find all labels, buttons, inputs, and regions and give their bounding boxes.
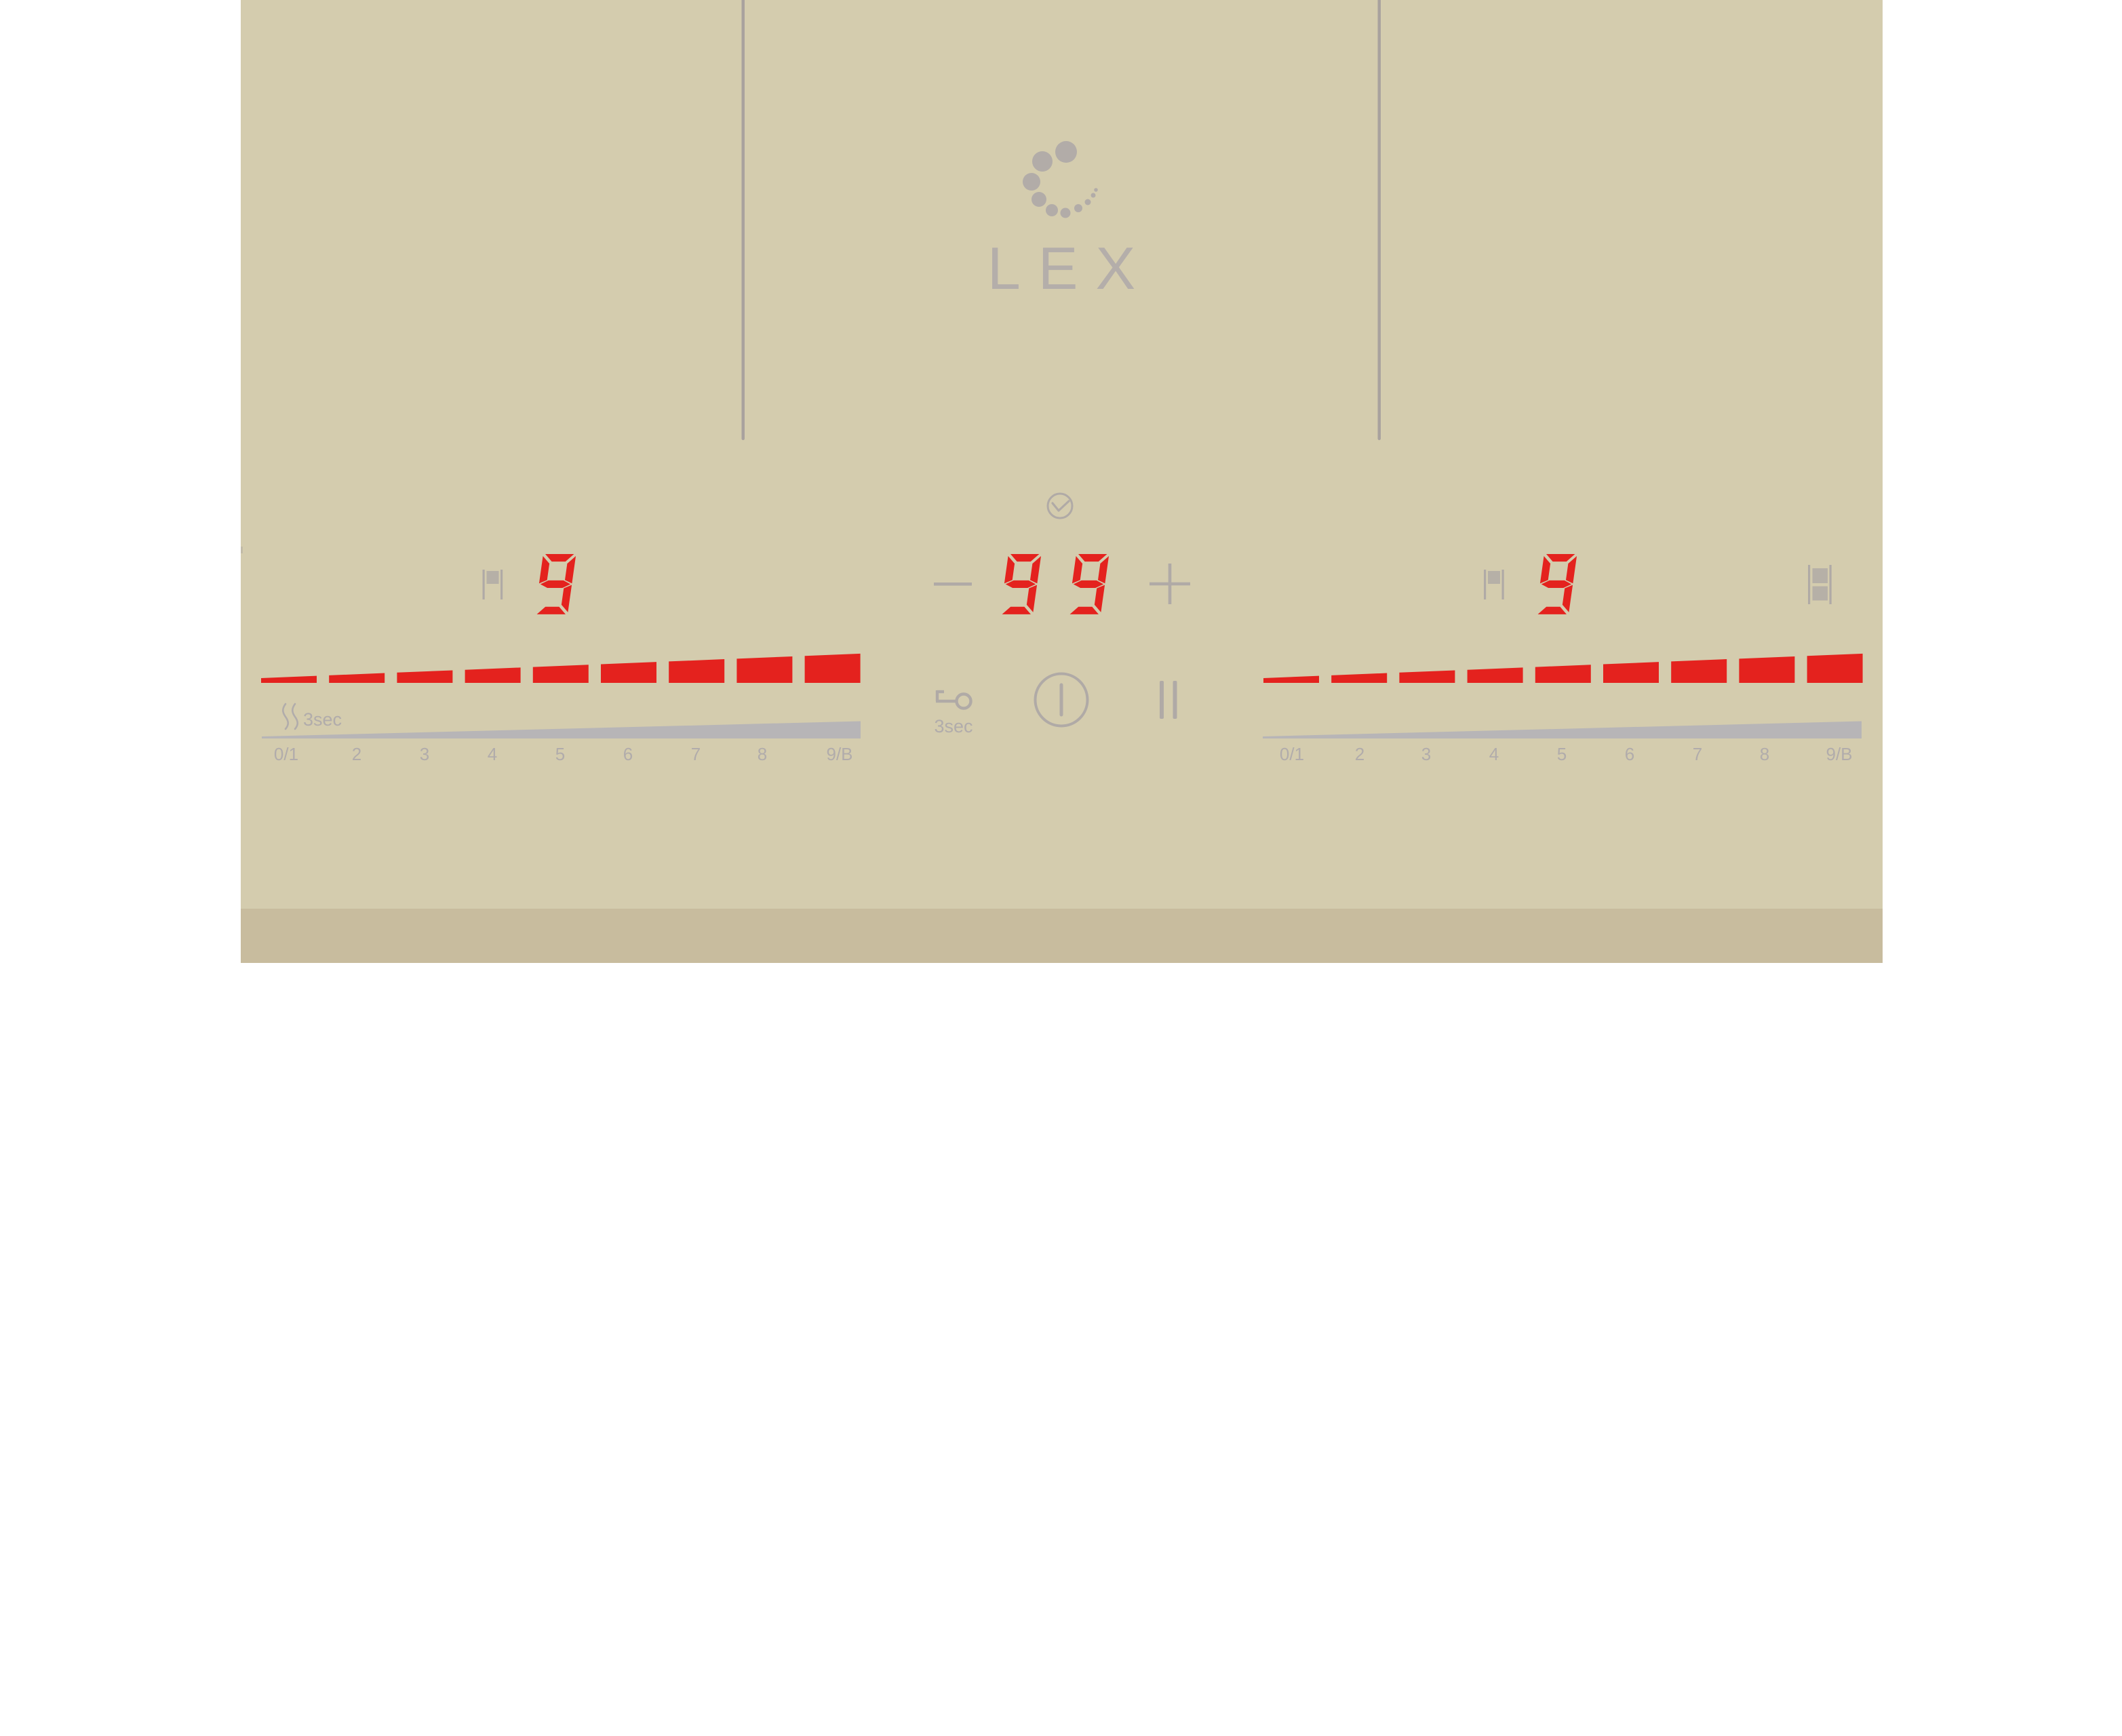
brand-logo-text: LEX bbox=[970, 239, 1153, 298]
left-zone-level-display bbox=[535, 554, 576, 614]
power-segment bbox=[805, 654, 861, 683]
power-segment bbox=[261, 676, 317, 683]
power-segment bbox=[1468, 667, 1523, 683]
power-segment bbox=[1807, 654, 1863, 683]
zone-divider-line-left bbox=[742, 0, 745, 440]
power-segment bbox=[329, 673, 385, 683]
power-segment bbox=[1331, 673, 1387, 683]
scale-label-right-9-B[interactable]: 9/B bbox=[1826, 745, 1852, 763]
left-zone-heat-hold-label: 3sec bbox=[303, 711, 342, 729]
power-segment bbox=[1671, 659, 1727, 683]
power-segment bbox=[669, 659, 724, 683]
left-zone-slider-track[interactable] bbox=[262, 722, 861, 739]
timer-display-digit bbox=[1068, 554, 1109, 614]
power-segment bbox=[1739, 656, 1794, 683]
dot-spiral-spinner-icon bbox=[1023, 141, 1098, 218]
power-segment bbox=[397, 670, 452, 683]
power-segment bbox=[736, 656, 792, 683]
power-segment bbox=[533, 665, 589, 683]
right-zone-slider-track[interactable] bbox=[1263, 722, 1862, 739]
bridge-icon[interactable] bbox=[1808, 565, 1832, 604]
scale-label-left-4[interactable]: 4 bbox=[488, 745, 497, 763]
scale-label-left-8[interactable]: 8 bbox=[758, 745, 767, 763]
scale-label-left-0-1[interactable]: 0/1 bbox=[274, 745, 298, 763]
lock-hold-label: 3sec bbox=[934, 717, 972, 736]
power-segment bbox=[1399, 670, 1455, 683]
edge-icon-remnant bbox=[241, 547, 243, 553]
scale-label-left-6[interactable]: 6 bbox=[623, 745, 633, 763]
left-zone-power-ramp bbox=[261, 654, 861, 683]
power-segment bbox=[601, 662, 656, 683]
power-segment bbox=[1603, 662, 1659, 683]
timer-clock-icon[interactable] bbox=[1048, 494, 1072, 518]
scale-label-right-0-1[interactable]: 0/1 bbox=[1280, 745, 1304, 763]
scale-label-right-8[interactable]: 8 bbox=[1760, 745, 1769, 763]
zone-divider-line-right bbox=[1378, 0, 1381, 440]
scale-label-left-9-B[interactable]: 9/B bbox=[826, 745, 852, 763]
scale-label-right-2[interactable]: 2 bbox=[1355, 745, 1364, 763]
power-segment bbox=[1263, 676, 1319, 683]
scale-label-right-7[interactable]: 7 bbox=[1693, 745, 1702, 763]
scale-label-left-7[interactable]: 7 bbox=[691, 745, 701, 763]
scale-label-left-2[interactable]: 2 bbox=[352, 745, 361, 763]
right-zone-level-display bbox=[1536, 554, 1577, 614]
scale-label-left-3[interactable]: 3 bbox=[420, 745, 429, 763]
power-icon[interactable] bbox=[1036, 674, 1088, 726]
pause-icon[interactable] bbox=[1160, 681, 1177, 719]
zone-flag-icon-left[interactable] bbox=[483, 570, 503, 599]
right-zone-power-ramp bbox=[1263, 654, 1863, 683]
power-segment bbox=[1535, 665, 1591, 683]
scale-label-right-4[interactable]: 4 bbox=[1489, 745, 1499, 763]
key-lock-icon[interactable] bbox=[936, 690, 971, 709]
panel-graphics bbox=[0, 0, 2122, 963]
scale-label-right-3[interactable]: 3 bbox=[1421, 745, 1431, 763]
zone-flag-icon-right[interactable] bbox=[1484, 570, 1504, 599]
heat-waves-icon bbox=[283, 704, 298, 729]
scale-label-right-6[interactable]: 6 bbox=[1625, 745, 1634, 763]
seven-segment-displays bbox=[535, 554, 1577, 614]
timer-plus-button[interactable] bbox=[1150, 564, 1190, 604]
timer-minus-button[interactable] bbox=[934, 583, 972, 586]
power-segment bbox=[465, 667, 521, 683]
scale-label-left-5[interactable]: 5 bbox=[555, 745, 565, 763]
scale-label-right-5[interactable]: 5 bbox=[1557, 745, 1567, 763]
timer-display-digit bbox=[1000, 554, 1042, 614]
